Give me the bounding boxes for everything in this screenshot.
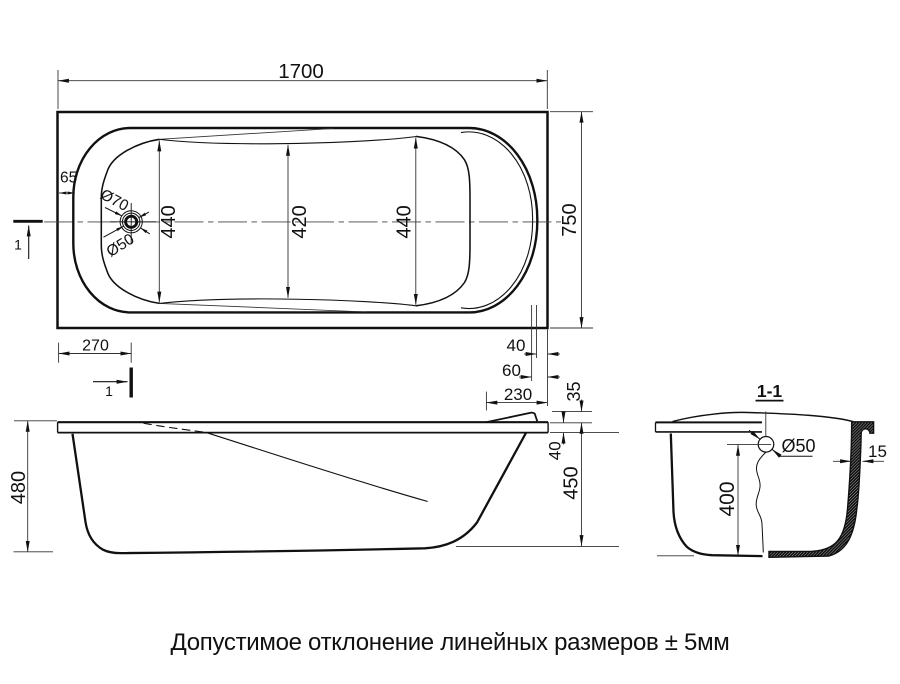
svg-text:440: 440 — [394, 205, 416, 238]
svg-text:480: 480 — [8, 471, 30, 504]
svg-text:270: 270 — [82, 338, 109, 355]
svg-text:Допустимое отклонение линейных: Допустимое отклонение линейных размеров … — [170, 629, 729, 656]
svg-text:450: 450 — [561, 466, 583, 499]
svg-text:35: 35 — [564, 381, 584, 401]
svg-text:40: 40 — [507, 336, 526, 355]
svg-text:1: 1 — [105, 383, 113, 399]
svg-text:15: 15 — [868, 442, 887, 461]
svg-text:Ø50: Ø50 — [782, 436, 816, 456]
svg-text:40: 40 — [545, 441, 564, 460]
svg-text:1: 1 — [14, 237, 22, 253]
svg-text:440: 440 — [158, 205, 180, 238]
svg-text:65: 65 — [60, 170, 77, 187]
svg-text:400: 400 — [716, 481, 739, 516]
svg-text:60: 60 — [502, 361, 521, 380]
svg-text:750: 750 — [559, 203, 581, 236]
svg-text:230: 230 — [504, 385, 532, 404]
svg-text:420: 420 — [289, 205, 311, 238]
svg-text:1700: 1700 — [278, 60, 324, 83]
svg-text:1-1: 1-1 — [757, 381, 783, 401]
